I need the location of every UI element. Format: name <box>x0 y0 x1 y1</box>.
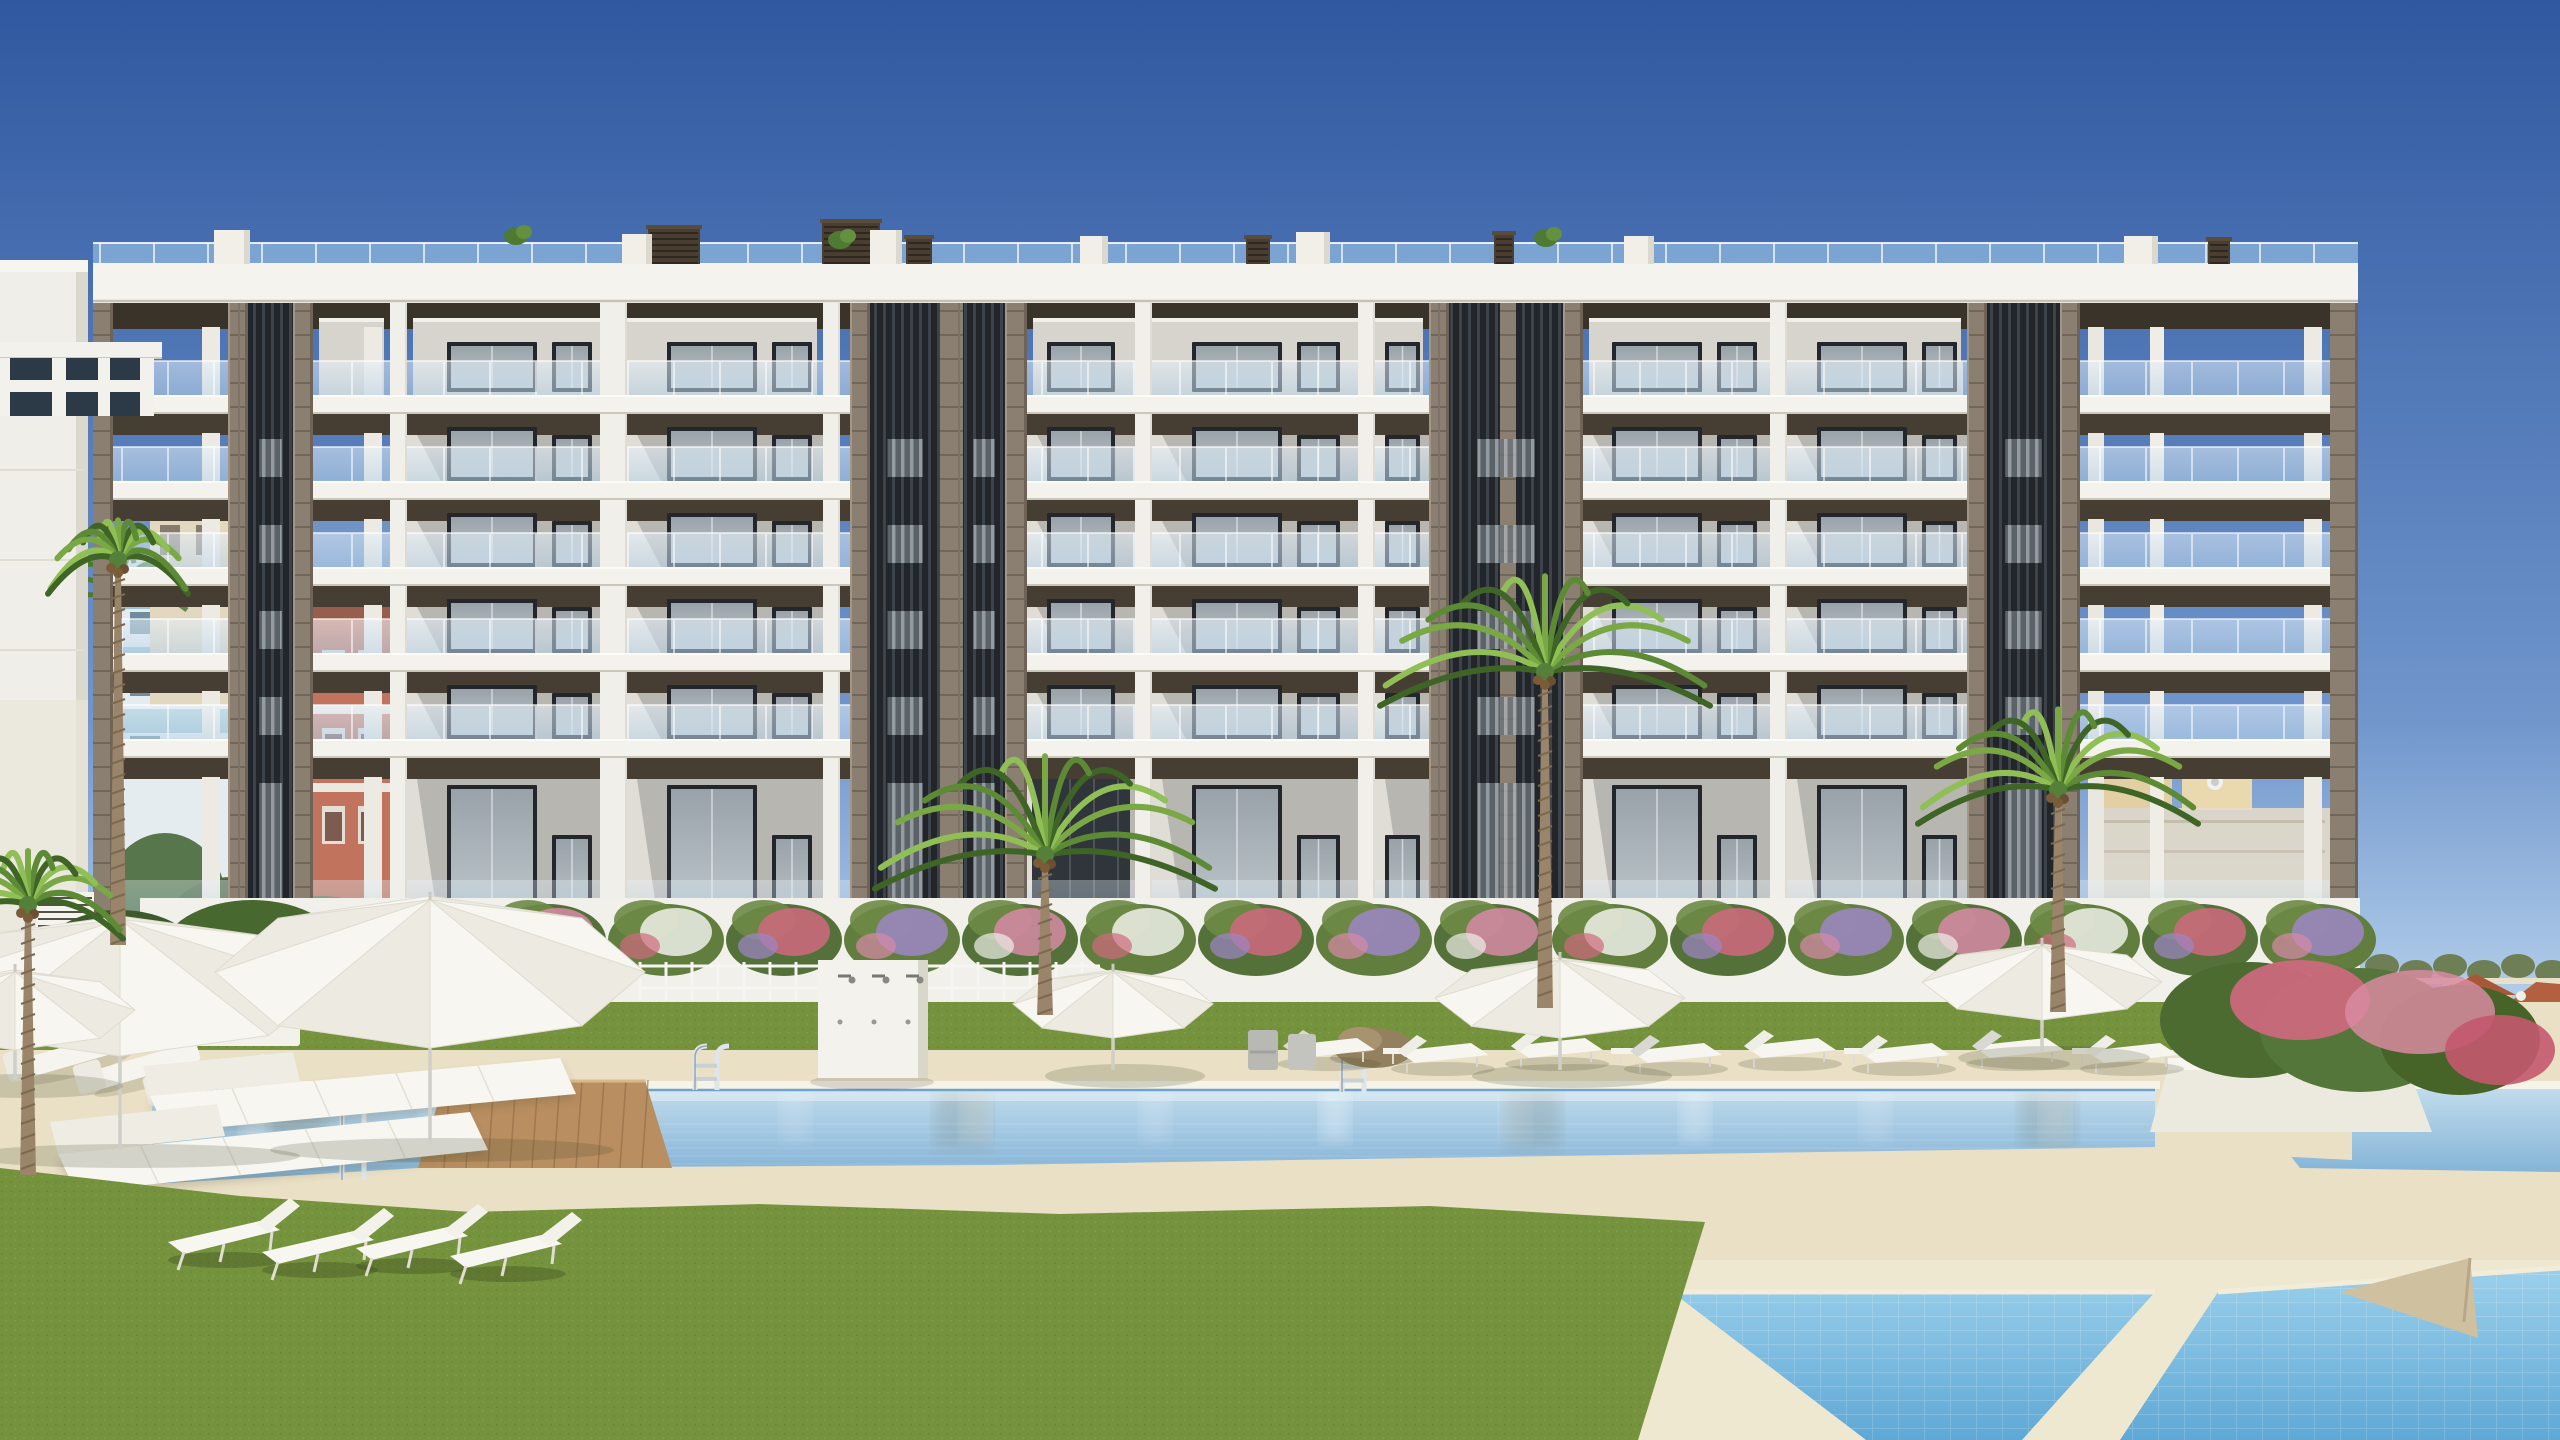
raised-planter <box>2150 960 2560 1172</box>
apartment-building <box>93 219 2358 940</box>
scene-svg <box>0 0 2560 1440</box>
lawn <box>0 1168 1705 1440</box>
shower-wall <box>810 960 934 1090</box>
architectural-rendering <box>0 0 2560 1440</box>
